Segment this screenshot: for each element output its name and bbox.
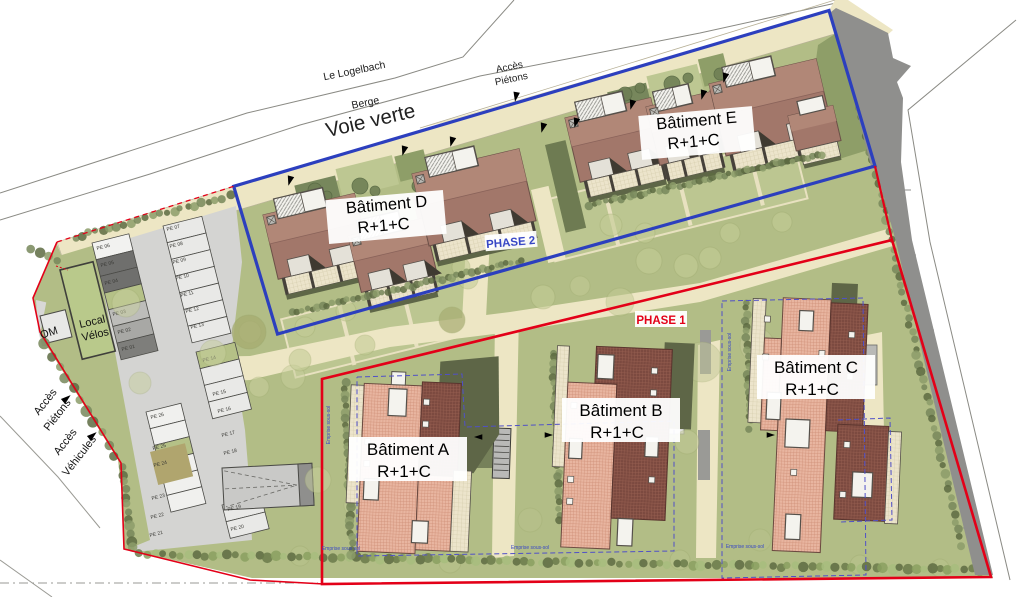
svg-text:Emprise sous-sol: Emprise sous-sol bbox=[322, 546, 360, 552]
svg-text:Emprise sous-sol: Emprise sous-sol bbox=[727, 333, 733, 371]
svg-text:Emprise sous-sol: Emprise sous-sol bbox=[511, 545, 549, 551]
svg-text:Emprise sous-sol: Emprise sous-sol bbox=[726, 544, 764, 550]
svg-text:R+1+C: R+1+C bbox=[590, 423, 644, 442]
svg-text:R+1+C: R+1+C bbox=[377, 462, 431, 481]
svg-text:Bâtiment B: Bâtiment B bbox=[579, 401, 662, 420]
svg-text:PHASE 1: PHASE 1 bbox=[636, 315, 686, 327]
svg-text:Emprise sous-sol: Emprise sous-sol bbox=[326, 406, 332, 444]
svg-text:Bâtiment A: Bâtiment A bbox=[367, 440, 450, 459]
svg-text:R+1+C: R+1+C bbox=[785, 380, 839, 399]
svg-text:Bâtiment C: Bâtiment C bbox=[774, 358, 858, 377]
